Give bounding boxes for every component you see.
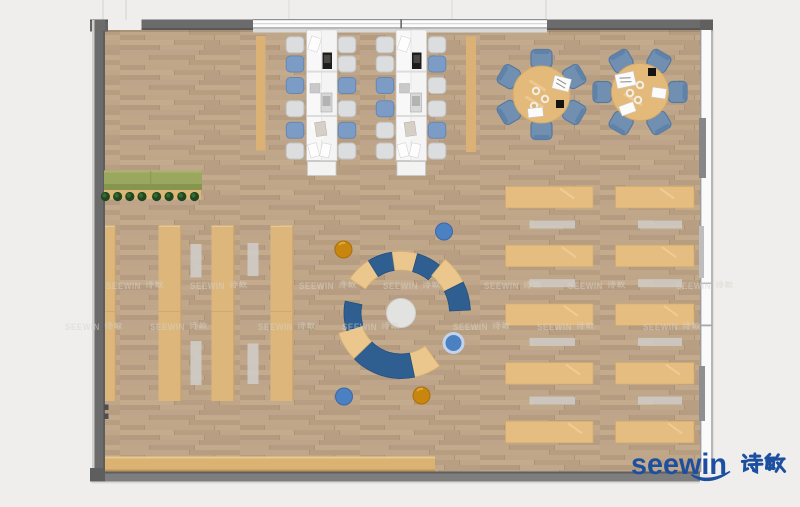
svg-text:seewin: seewin [631,448,727,481]
